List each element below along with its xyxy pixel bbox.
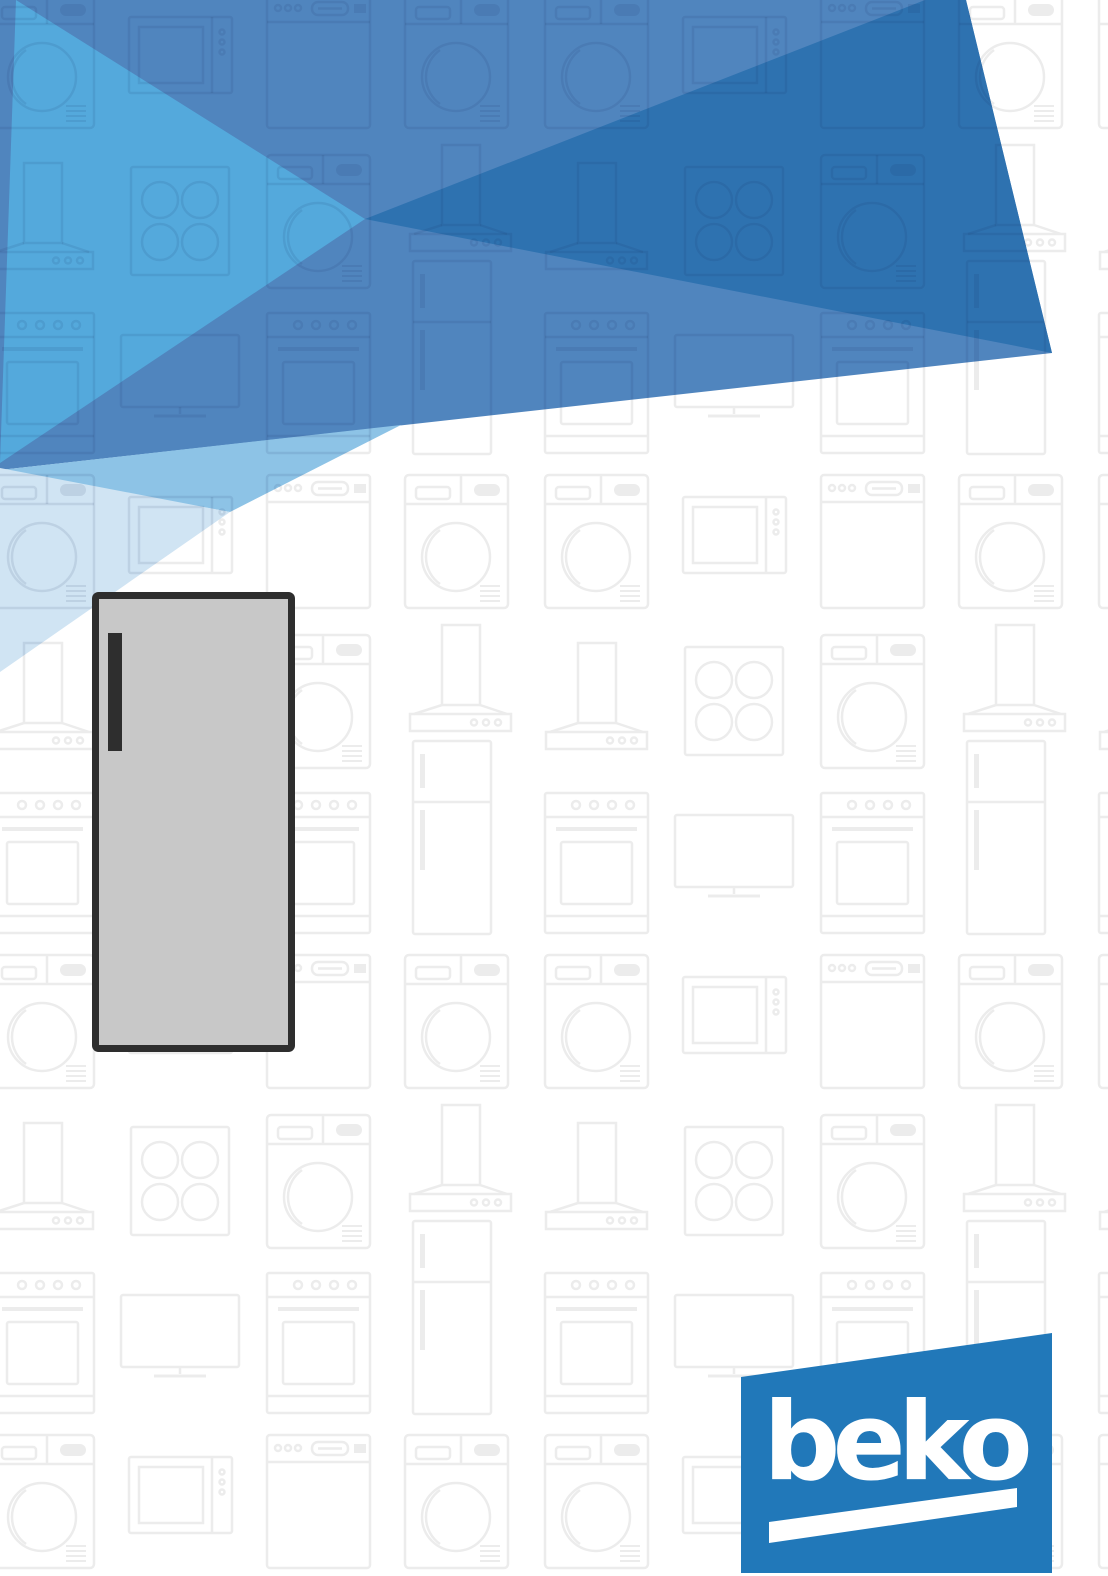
freezer-door [96, 596, 292, 1049]
beko-logo-text: beko [763, 1380, 1028, 1505]
cover-graphic: beko [0, 0, 1108, 1576]
freezer-handle [108, 633, 122, 751]
freezer-illustration [96, 596, 292, 1049]
manual-cover-page: beko [0, 0, 1108, 1576]
